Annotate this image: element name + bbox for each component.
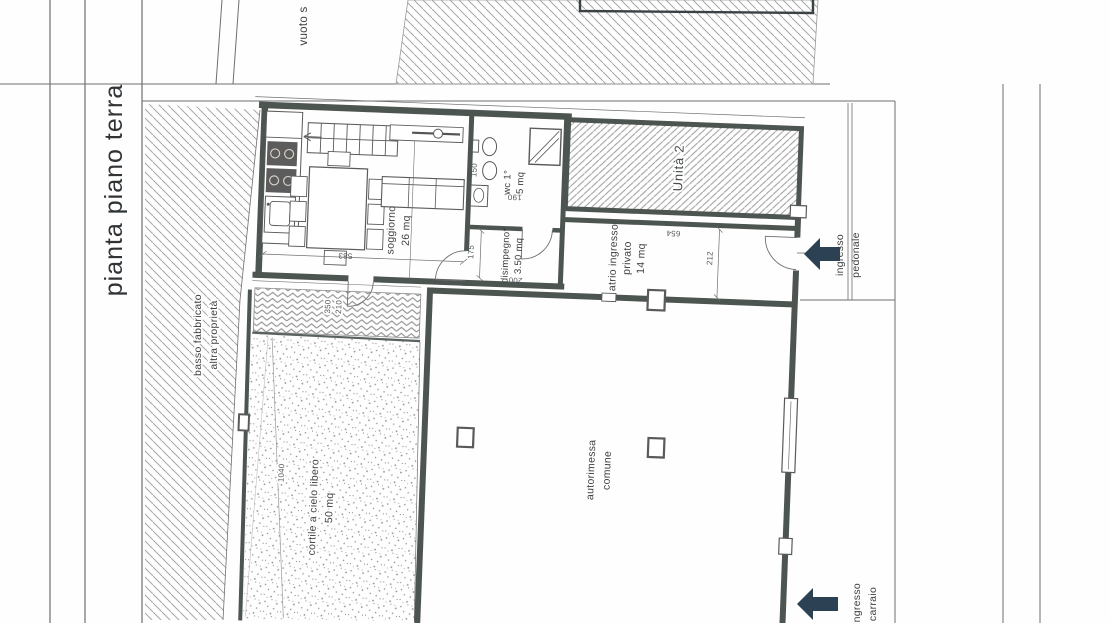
atrio-area: 14 mq (635, 243, 648, 274)
wc-dim-190: 190 (507, 192, 522, 202)
staircase (303, 123, 398, 157)
soggiorno-dim-line (259, 251, 467, 265)
soggiorno-guide-line (409, 141, 414, 279)
toilet-icon (482, 137, 497, 156)
paving-dim-350: 350 (323, 299, 333, 314)
wc-disimpegno-divider (467, 227, 562, 231)
upper-fragment-partition-lines (216, 0, 239, 84)
disimpegno-dim-200: 200 (508, 275, 523, 285)
wc-label: wc 1° (502, 170, 514, 196)
floor-plan-drawing: pianta piano terra vuoto s basso fabbric… (0, 0, 1110, 623)
bidet-icon (482, 161, 497, 180)
wc-room: wc 1° 5 mq 150 190 (468, 126, 561, 209)
autorimessa-label-line1: autorimessa (584, 439, 598, 500)
soggiorno-door-arc (435, 250, 466, 281)
atrio-dim-212: 212 (705, 251, 715, 266)
sofa-outline (381, 177, 464, 210)
wc-area: 5 mq (515, 172, 527, 195)
autorimessa-room: autorimessa comune (455, 428, 664, 503)
disimpegno-area: 3.50 mq (513, 237, 525, 274)
soggiorno-area: 26 mq (400, 215, 413, 246)
floor-plan-sheet: pianta piano terra vuoto s basso fabbric… (0, 0, 1110, 623)
paving-strip: 350 210 (250, 281, 422, 341)
carraio-label-line1: ingresso (851, 583, 863, 623)
sink-basin (269, 201, 290, 226)
driveway-entrance-arrow-icon (797, 588, 838, 620)
page-title: pianta piano terra (100, 84, 128, 297)
autorimessa-label-line2: comune (600, 451, 613, 491)
sofa (381, 177, 464, 210)
disimpegno-dim-line (476, 228, 484, 280)
tv-dot-icon (433, 129, 442, 138)
dining-set (288, 150, 386, 267)
garage-pillar-1 (457, 428, 474, 448)
tv-unit (390, 125, 464, 143)
toilet-tank (472, 140, 478, 152)
garage-pillar-2 (648, 438, 665, 458)
upper-floor-fragment: vuoto s (216, 0, 818, 84)
disimpegno-dim-175: 175 (466, 245, 476, 260)
soggiorno-label: soggiorno (384, 205, 398, 254)
atrio-wall-vent (602, 293, 616, 302)
atrio-label-line1: atrio ingresso (606, 224, 621, 292)
top-wall (259, 105, 572, 117)
atrio-dim-line (714, 226, 723, 300)
cortile-wall-notch (238, 414, 249, 430)
atrio-wall-pillar (647, 290, 665, 311)
disimpegno-room: disimpegno* 3.50 mq 175 200 (465, 226, 552, 286)
disimpegno-door-arc (521, 229, 552, 260)
unita2-block: Unità 2 (565, 120, 809, 218)
pedestrian-entrance: ingresso pedonale (797, 103, 895, 300)
cortile-area: 50 mq (323, 492, 336, 523)
atrio-entry-door-arc (764, 236, 797, 269)
vuoto-label: vuoto s (298, 6, 310, 45)
wc-sink-basin (473, 188, 484, 202)
cortile-stipple-area (240, 334, 425, 623)
carraio-label-line2: carraio (867, 587, 879, 621)
wc-dim-150: 150 (469, 163, 479, 178)
basso-fabbricato-label-line1: basso fabbricato (192, 294, 204, 376)
building-plan: 350 210 1040 cortile a cielo libero 50 m… (231, 96, 810, 623)
paving-dim-210: 210 (334, 299, 344, 314)
stove-module-1 (267, 141, 298, 166)
right-wall-window-small (779, 538, 793, 554)
atrio-dim-654: 654 (666, 228, 681, 238)
soggiorno-dim-583: 583 (338, 251, 353, 261)
dining-table (307, 167, 368, 250)
driveway-entrance: ingresso carraio (797, 583, 879, 623)
pedonale-label-line1: ingresso (834, 234, 846, 276)
unita2-label: Unità 2 (670, 144, 687, 191)
basso-fabbricato-label-line2: altra proprietà (208, 300, 220, 369)
cortile-dim-1040: 1040 (277, 463, 287, 482)
disimpegno-label: disimpegno* (499, 227, 512, 283)
atrio-label-line2: privato (621, 241, 634, 275)
atrio-top-wall (563, 220, 798, 229)
unita2-jamb-block (790, 205, 806, 218)
pedonale-label-line2: pedonale (850, 232, 862, 278)
shower (529, 128, 561, 165)
